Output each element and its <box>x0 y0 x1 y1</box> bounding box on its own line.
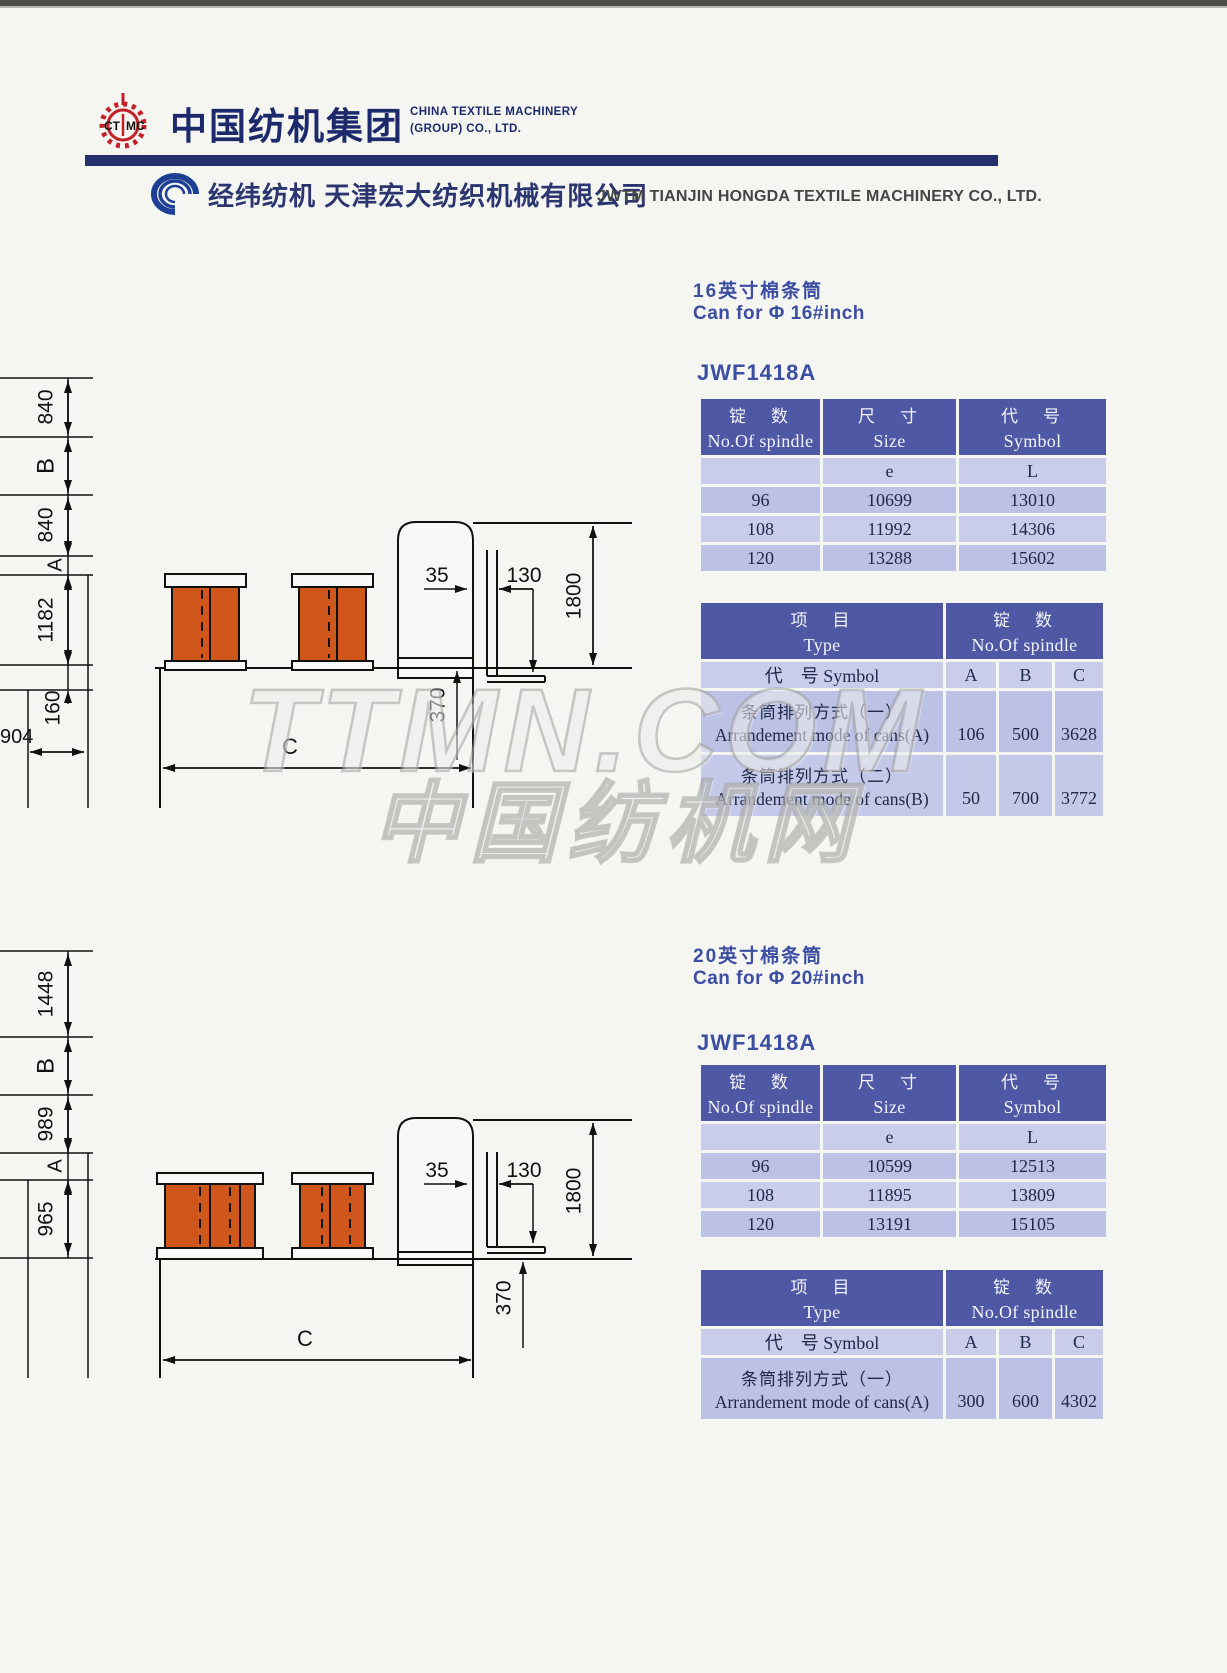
arrangement-label: 条筒排列方式（二）Arrandement mode of cans(B) <box>701 755 943 816</box>
value-cell: 96 <box>701 487 820 513</box>
svg-text:CT: CT <box>104 119 121 133</box>
arrangement-label-en: Arrandement mode of cans(B) <box>701 789 943 810</box>
section2-title-cn: 20英寸棉条筒 <box>693 941 823 968</box>
section1-title-en: Can for Φ 16#inch <box>693 303 865 325</box>
table-row: 条筒排列方式（一）Arrandement mode of cans(A) 106… <box>701 691 1103 752</box>
table-row: 96 10699 13010 <box>701 487 1106 513</box>
col-b: B <box>999 662 1052 688</box>
spec-header-row: 锭 数No.Of spindle 尺 寸Size 代 号Symbol <box>701 399 1106 455</box>
dim-label-370: 370 <box>493 1280 516 1315</box>
dim-label: 1182 <box>35 597 58 642</box>
col-header-en: No.Of spindle <box>701 1097 820 1118</box>
col-header-spindle: 锭 数No.Of spindle <box>701 1065 820 1121</box>
technical-drawing-20inch: 1448 B 989 A 965 <box>0 930 640 1380</box>
table-row: 108 11992 14306 <box>701 516 1106 542</box>
company-name-cn: 经纬纺机 天津宏大纺织机械有限公司 <box>208 176 648 213</box>
dim-label: 989 <box>35 1106 58 1141</box>
col-header-cn: 尺 寸 <box>823 1068 956 1093</box>
dim-label: A <box>44 1159 66 1173</box>
col-header-cn: 项 目 <box>701 606 943 631</box>
arrangement-label-cn: 条筒排列方式（一） <box>701 1365 943 1390</box>
col-header-spindle: 锭 数No.Of spindle <box>946 1270 1103 1326</box>
value-cell <box>701 1124 820 1150</box>
arr-header-row: 项 目Type 锭 数No.Of spindle <box>701 1270 1103 1326</box>
value-cell: 120 <box>701 1211 820 1237</box>
col-header-cn: 项 目 <box>701 1273 943 1298</box>
value-cell: 300 <box>946 1358 996 1419</box>
arr-header-row: 项 目Type 锭 数No.Of spindle <box>701 603 1103 659</box>
value-cell: L <box>959 1124 1106 1150</box>
value-cell: 50 <box>946 755 996 816</box>
dimension-labels-vertical: 1448 B 989 A 965 <box>32 971 66 1237</box>
arrangement-label-cn: 条筒排列方式（二） <box>701 762 943 787</box>
table-row: 120 13288 15602 <box>701 545 1106 571</box>
table-row: 96 10599 12513 <box>701 1153 1106 1179</box>
col-c: C <box>1055 662 1103 688</box>
dim-label: A <box>44 558 66 572</box>
col-header-en: No.Of spindle <box>946 635 1103 656</box>
symbol-row: 代 号 Symbol A B C <box>701 662 1103 688</box>
arrangement-label: 条筒排列方式（一）Arrandement mode of cans(A) <box>701 691 943 752</box>
table-row: 120 13191 15105 <box>701 1211 1106 1237</box>
arrangement-table-20inch: 项 目Type 锭 数No.Of spindle 代 号 Symbol A B … <box>698 1267 1106 1422</box>
col-header-cn: 锭 数 <box>701 1068 820 1093</box>
jwtm-logo <box>148 172 202 218</box>
value-cell: e <box>823 1124 956 1150</box>
value-cell <box>701 458 820 484</box>
section2-model: JWF1418A <box>697 1030 816 1056</box>
dim-label: B <box>32 458 59 474</box>
arrangement-label-en: Arrandement mode of cans(A) <box>701 1392 943 1413</box>
dim-label: 965 <box>35 1201 58 1236</box>
company-group-name-en: CHINA TEXTILE MACHINERY (GROUP) CO., LTD… <box>410 104 578 137</box>
table-row: 条筒排列方式（二）Arrandement mode of cans(B) 50 … <box>701 755 1103 816</box>
value-cell: 13010 <box>959 487 1106 513</box>
measuring-can-outline <box>398 1118 632 1378</box>
header-divider-bar <box>85 155 998 166</box>
value-cell: e <box>823 458 956 484</box>
spec-header-row: 锭 数No.Of spindle 尺 寸Size 代 号Symbol <box>701 1065 1106 1121</box>
dim-label-1800: 1800 <box>563 573 586 620</box>
section1-model: JWF1418A <box>697 360 816 386</box>
svg-text:MC: MC <box>126 119 145 133</box>
col-header-en: Size <box>823 1097 956 1118</box>
col-header-cn: 代 号 <box>959 402 1106 427</box>
arrangement-label-cn: 条筒排列方式（一） <box>701 698 943 723</box>
arrangement-label: 条筒排列方式（一）Arrandement mode of cans(A) <box>701 1358 943 1419</box>
col-header-cn: 锭 数 <box>946 606 1103 631</box>
col-b: B <box>999 1329 1052 1355</box>
col-header-spindle: 锭 数No.Of spindle <box>701 399 820 455</box>
col-header-cn: 锭 数 <box>946 1273 1103 1298</box>
symbol-label-cell: 代 号 Symbol <box>701 662 943 688</box>
value-cell: 600 <box>999 1358 1052 1419</box>
col-header-type: 项 目Type <box>701 1270 943 1326</box>
col-header-en: Symbol <box>959 1097 1106 1118</box>
catalog-page: CT MC 中国纺机集团 CHINA TEXTILE MACHINERY (GR… <box>0 0 1227 1673</box>
company-group-en-line1: CHINA TEXTILE MACHINERY <box>410 104 578 121</box>
value-cell: 14306 <box>959 516 1106 542</box>
col-a: A <box>946 662 996 688</box>
col-c: C <box>1055 1329 1103 1355</box>
value-cell: 15105 <box>959 1211 1106 1237</box>
col-header-en: Type <box>701 1302 943 1323</box>
dim-label-35: 35 <box>425 1159 448 1182</box>
symbol-row: 代 号 Symbol A B C <box>701 1329 1103 1355</box>
value-cell: 13191 <box>823 1211 956 1237</box>
col-header-en: Type <box>701 635 943 656</box>
company-group-name-cn: 中国纺机集团 <box>170 96 404 150</box>
value-cell: 10699 <box>823 487 956 513</box>
col-header-symbol: 代 号Symbol <box>959 399 1106 455</box>
section1-title-cn: 16英寸棉条筒 <box>693 276 823 303</box>
value-cell: 108 <box>701 516 820 542</box>
machine-outline <box>155 668 632 808</box>
col-header-size: 尺 寸Size <box>823 1065 956 1121</box>
col-header-en: No.Of spindle <box>946 1302 1103 1323</box>
col-header-size: 尺 寸Size <box>823 399 956 455</box>
value-cell: 4302 <box>1055 1358 1103 1419</box>
dim-label: 160 <box>42 690 65 725</box>
dim-label: B <box>32 1058 59 1074</box>
value-cell: 11992 <box>823 516 956 542</box>
value-cell: 500 <box>999 691 1052 752</box>
value-cell: 96 <box>701 1153 820 1179</box>
section2-title-en: Can for Φ 20#inch <box>693 968 865 990</box>
value-cell: 15602 <box>959 545 1106 571</box>
dim-label: 840 <box>35 389 58 424</box>
value-cell: L <box>959 458 1106 484</box>
value-cell: 13288 <box>823 545 956 571</box>
dim-label: 1448 <box>35 971 58 1018</box>
col-header-type: 项 目Type <box>701 603 943 659</box>
scan-edge-shadow <box>0 6 1227 8</box>
col-header-en: Size <box>823 431 956 452</box>
value-cell: 106 <box>946 691 996 752</box>
sliver-can-2 <box>292 1173 373 1259</box>
company-name-en: JWTM TIANJIN HONGDA TEXTILE MACHINERY CO… <box>597 188 1042 206</box>
value-cell: 10599 <box>823 1153 956 1179</box>
col-header-symbol: 代 号Symbol <box>959 1065 1106 1121</box>
dim-label-130: 130 <box>506 1159 541 1182</box>
dim-label-904: 904 <box>0 726 33 748</box>
value-cell: 120 <box>701 545 820 571</box>
sliver-can-1 <box>165 574 246 670</box>
value-cell: 3628 <box>1055 691 1103 752</box>
col-header-en: No.Of spindle <box>701 431 820 452</box>
value-cell: 108 <box>701 1182 820 1208</box>
sliver-can-2 <box>292 574 373 670</box>
dim-label-c: C <box>282 734 298 759</box>
col-header-spindle: 锭 数No.Of spindle <box>946 603 1103 659</box>
dim-label-130: 130 <box>506 564 541 587</box>
dimension-labels-vertical: 840 B 840 A 1182 160 904 <box>0 389 66 748</box>
value-cell: 3772 <box>1055 755 1103 816</box>
technical-drawing-16inch: 840 B 840 A 1182 160 904 <box>0 360 640 810</box>
col-a: A <box>946 1329 996 1355</box>
arrangement-table-16inch: 项 目Type 锭 数No.Of spindle 代 号 Symbol A B … <box>698 600 1106 819</box>
company-group-en-line2: (GROUP) CO., LTD. <box>410 121 578 138</box>
value-cell: 12513 <box>959 1153 1106 1179</box>
value-cell: 700 <box>999 755 1052 816</box>
col-header-cn: 代 号 <box>959 1068 1106 1093</box>
col-header-cn: 锭 数 <box>701 402 820 427</box>
dim-label-1800: 1800 <box>563 1168 586 1215</box>
value-cell: 11895 <box>823 1182 956 1208</box>
spec-subheader-row: e L <box>701 458 1106 484</box>
arrangement-label-en: Arrandement mode of cans(A) <box>701 725 943 746</box>
spec-subheader-row: e L <box>701 1124 1106 1150</box>
col-header-en: Symbol <box>959 431 1106 452</box>
ctmc-logo: CT MC <box>86 92 164 154</box>
spec-table-20inch: 锭 数No.Of spindle 尺 寸Size 代 号Symbol e L 9… <box>698 1062 1109 1240</box>
value-cell: 13809 <box>959 1182 1106 1208</box>
col-header-cn: 尺 寸 <box>823 402 956 427</box>
symbol-label-cell: 代 号 Symbol <box>701 1329 943 1355</box>
table-row: 条筒排列方式（一）Arrandement mode of cans(A) 300… <box>701 1358 1103 1419</box>
dim-label-c: C <box>297 1326 313 1351</box>
table-row: 108 11895 13809 <box>701 1182 1106 1208</box>
dim-label: 840 <box>35 507 58 542</box>
dim-label-35: 35 <box>425 564 448 587</box>
spec-table-16inch: 锭 数No.Of spindle 尺 寸Size 代 号Symbol e L 9… <box>698 396 1109 574</box>
dim-label-370: 370 <box>427 687 450 722</box>
sliver-can-1 <box>157 1173 263 1259</box>
